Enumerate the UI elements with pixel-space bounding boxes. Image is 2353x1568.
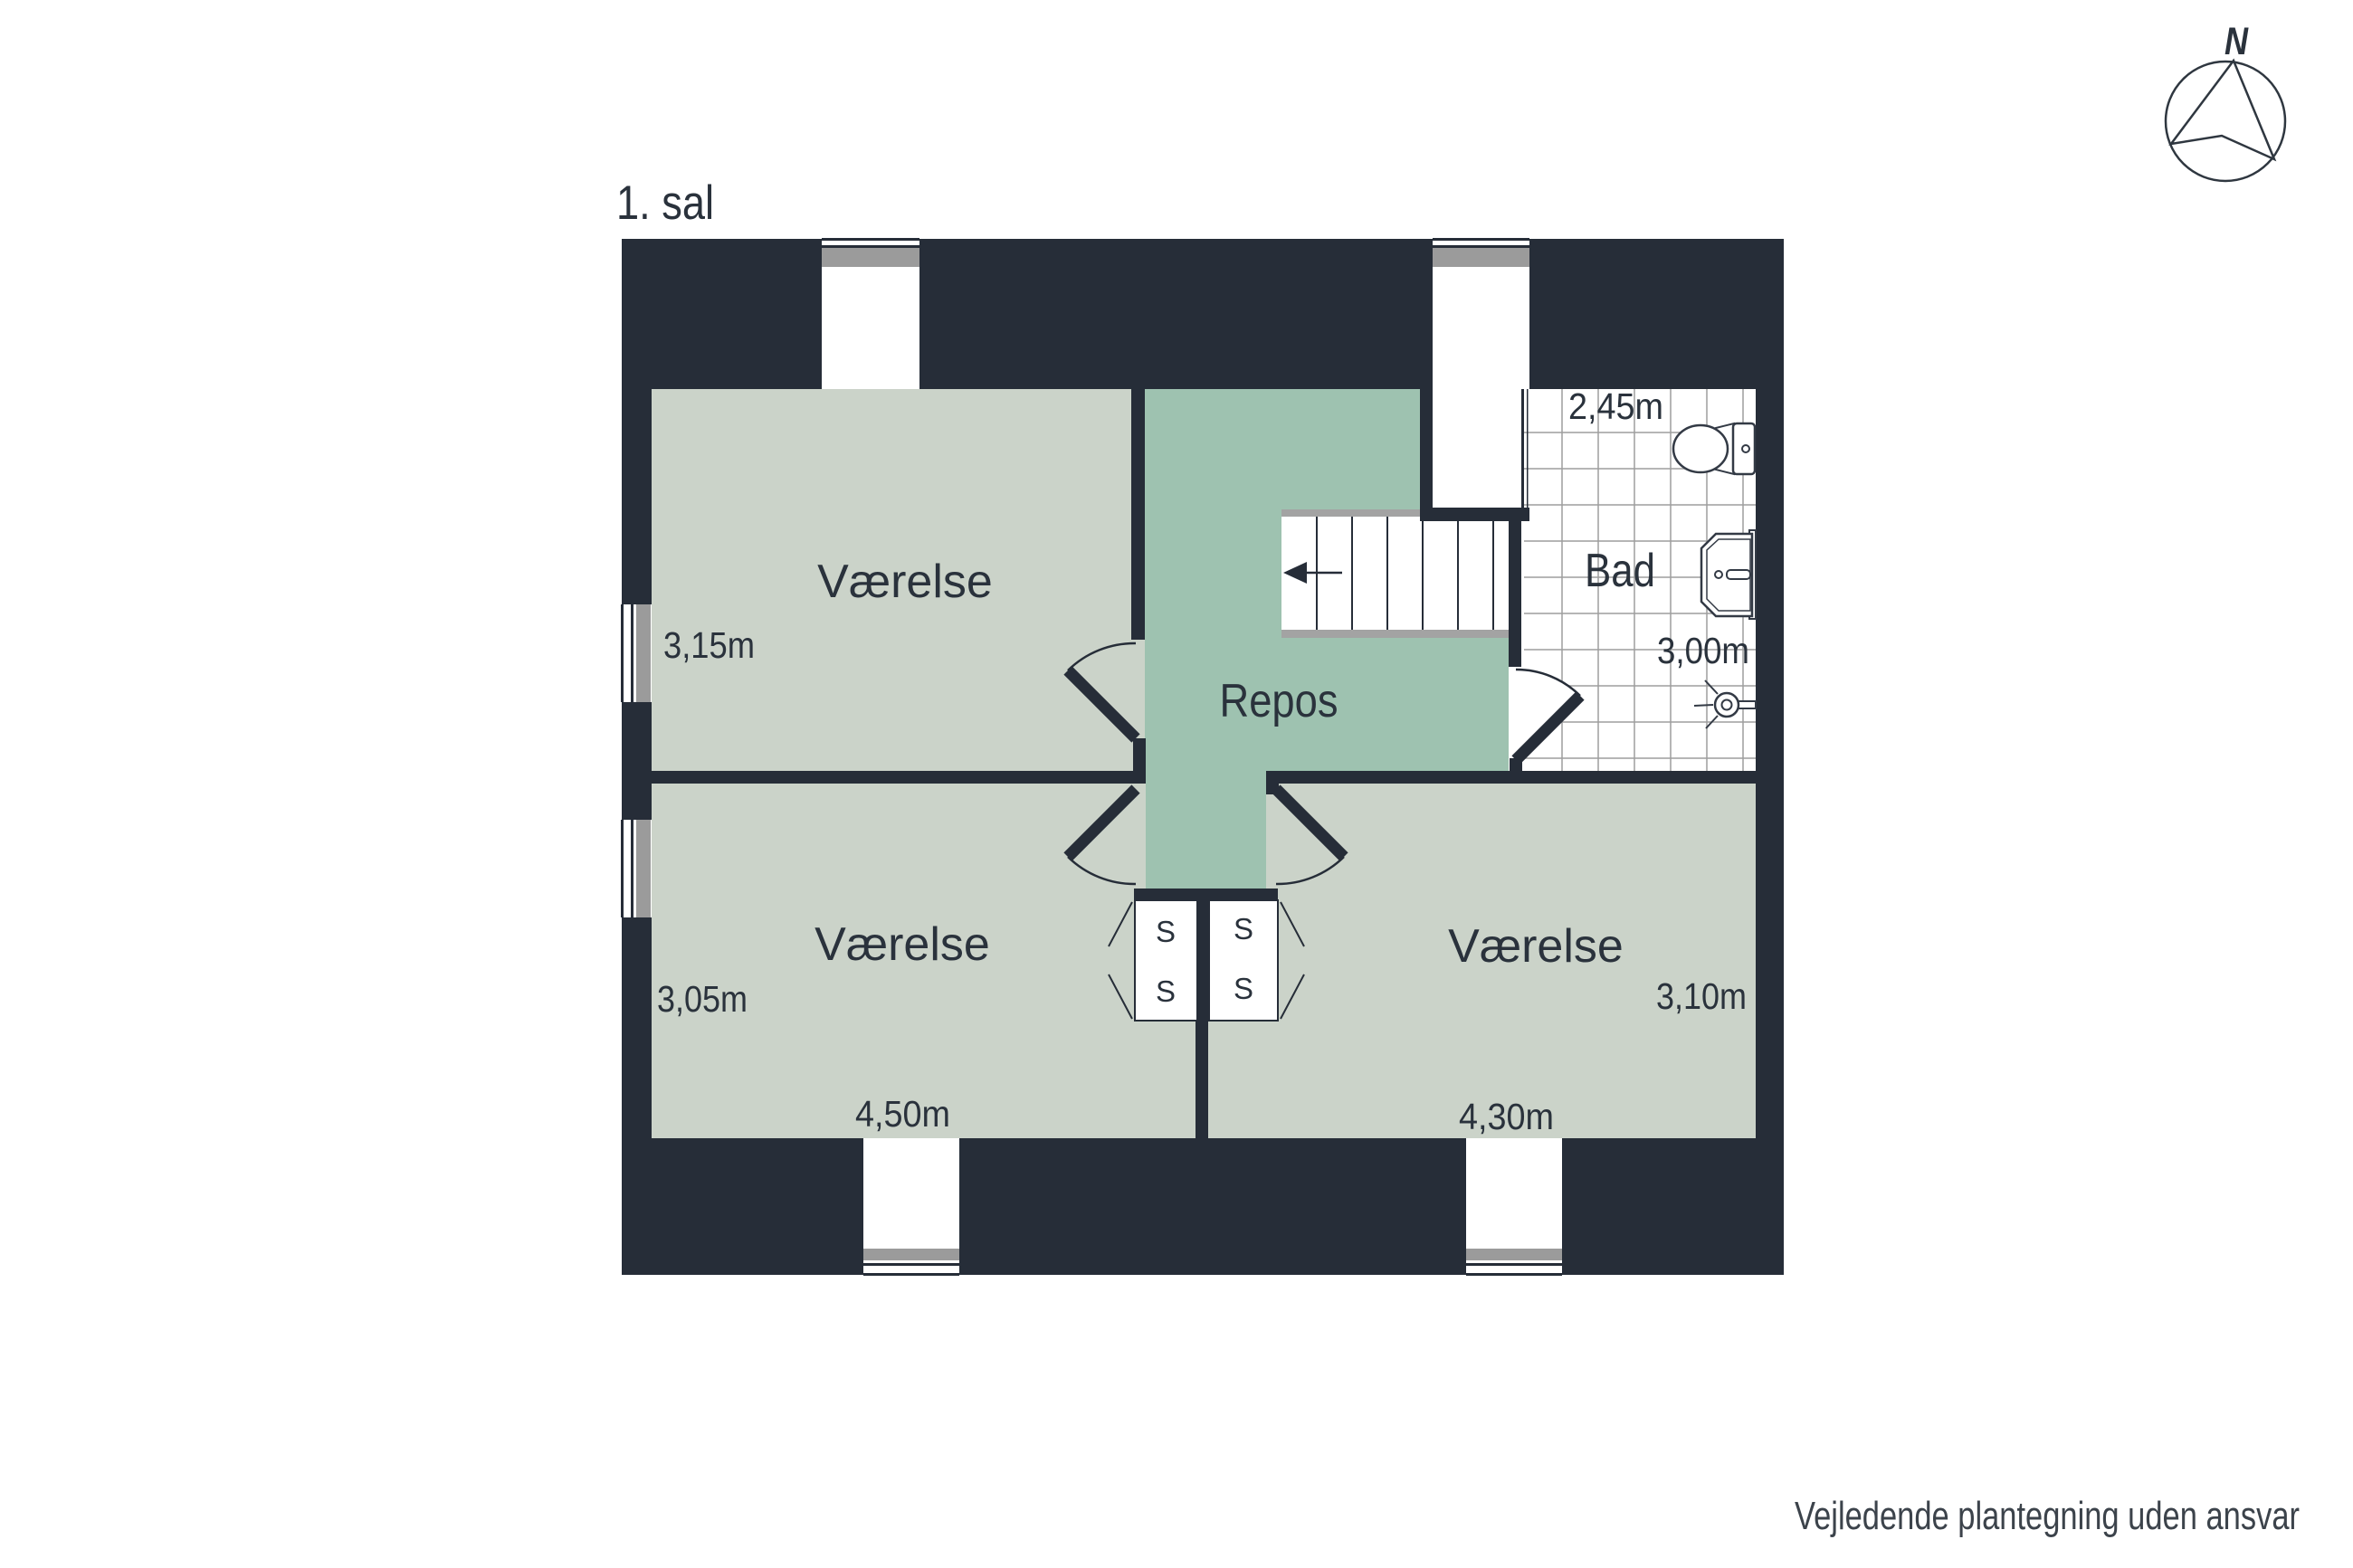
svg-text:3,15m: 3,15m <box>663 624 755 666</box>
svg-text:3,00m: 3,00m <box>1657 630 1749 671</box>
svg-text:S: S <box>1234 972 1253 1005</box>
svg-text:Repos: Repos <box>1220 675 1338 727</box>
svg-text:3,05m: 3,05m <box>657 978 748 1020</box>
svg-text:Værelse: Værelse <box>814 918 990 971</box>
svg-text:4,30m: 4,30m <box>1459 1096 1554 1137</box>
svg-text:1. sal: 1. sal <box>616 176 714 230</box>
svg-text:Vejledende plantegning uden an: Vejledende plantegning uden ansvar <box>1795 1494 2300 1538</box>
svg-text:2,45m: 2,45m <box>1568 385 1663 427</box>
svg-text:Værelse: Værelse <box>1448 920 1624 973</box>
svg-text:Bad: Bad <box>1585 545 1655 597</box>
svg-text:Værelse: Værelse <box>817 556 993 608</box>
svg-text:S: S <box>1234 912 1253 946</box>
svg-text:S: S <box>1156 915 1176 948</box>
svg-text:S: S <box>1156 974 1176 1008</box>
svg-text:4,50m: 4,50m <box>855 1093 950 1135</box>
svg-text:3,10m: 3,10m <box>1656 975 1747 1017</box>
svg-text:N: N <box>2224 20 2249 63</box>
